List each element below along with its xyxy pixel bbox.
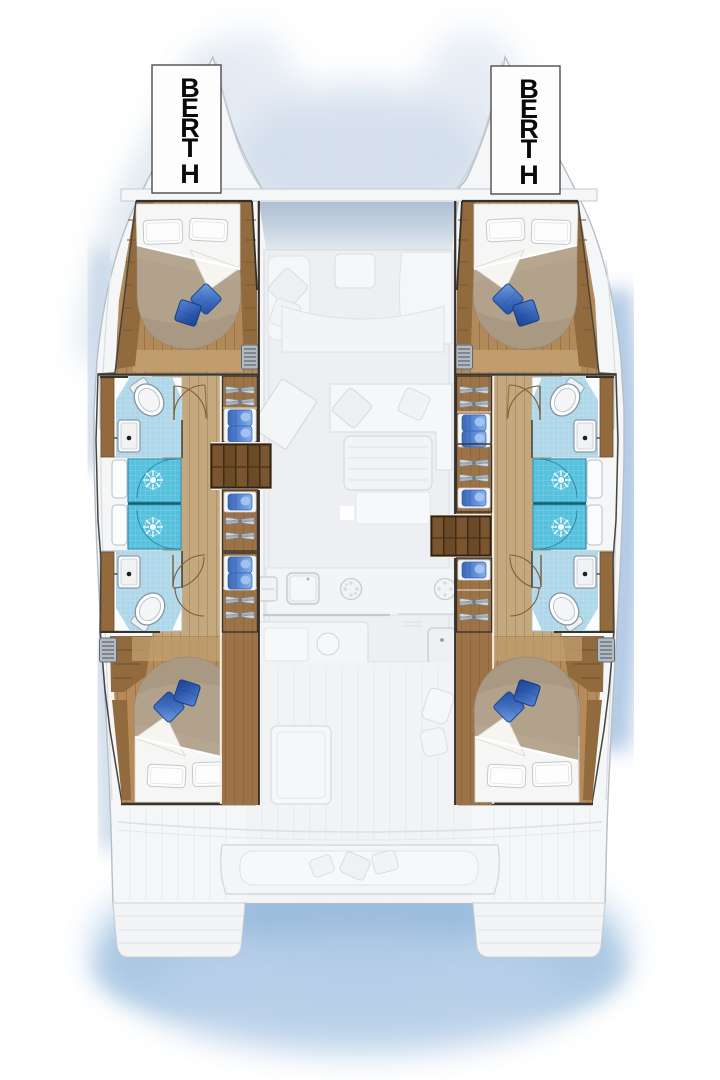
svg-text:H: H: [519, 160, 539, 190]
svg-text:H: H: [180, 159, 200, 189]
